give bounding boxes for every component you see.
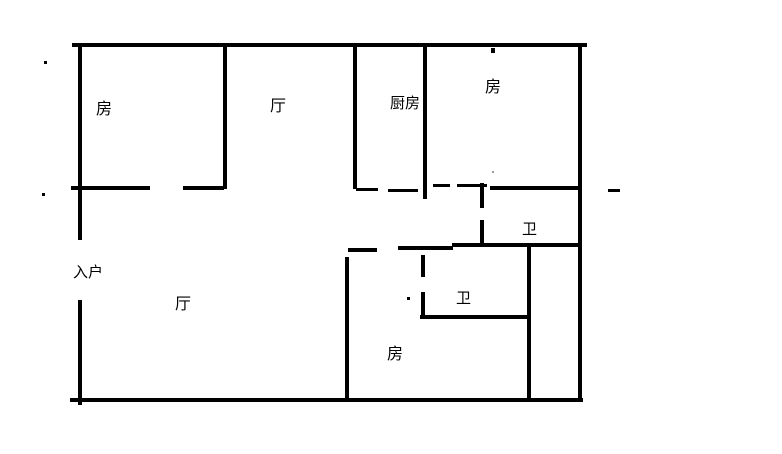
stray-mark-left-upper	[44, 61, 47, 64]
wall-kitchen-bedroom2	[423, 44, 427, 199]
wall-mid-seg2	[183, 186, 224, 190]
room-label-bath-top: 卫	[522, 222, 537, 237]
wall-bedroom1-hall	[223, 46, 227, 189]
wall-mid-seg4	[388, 189, 418, 192]
wall-bath2-left-dash-a	[421, 255, 425, 277]
room-label-hall-main: 厅	[175, 296, 191, 312]
wall-hall-dash	[348, 248, 377, 252]
room-label-bedroom-top-right: 房	[485, 79, 501, 95]
wall-right	[578, 44, 582, 402]
room-label-kitchen: 厨房	[390, 96, 420, 111]
wall-bath1-left-dash-a	[480, 183, 484, 208]
stray-mark-bath2	[407, 297, 410, 300]
wall-left-lower	[78, 300, 82, 405]
wall-bath1-bottom-b	[398, 246, 453, 250]
room-label-hall-top: 厅	[270, 98, 286, 114]
wall-top	[72, 43, 587, 47]
wall-mid-seg1	[71, 186, 150, 190]
wall-hall-kitchen	[353, 47, 357, 189]
wall-bath2-right	[527, 246, 531, 400]
stray-mark-bedroom2-lower	[492, 171, 494, 173]
floorplan-canvas: 房 厅 厨房 房 入户 厅 卫 卫 房	[0, 0, 782, 454]
wall-bath1-bottom-a	[452, 243, 578, 247]
wall-bedroom3-left	[345, 257, 349, 400]
room-label-bath-bottom: 卫	[456, 291, 471, 306]
stray-mark-left-mid	[42, 193, 45, 196]
wall-bath2-bottom	[420, 315, 528, 319]
wall-left-upper	[78, 44, 82, 240]
stray-mark-bedroom2	[491, 48, 495, 53]
wall-mid-seg7	[490, 186, 581, 190]
room-label-bedroom-top-left: 房	[96, 101, 112, 117]
wall-bath1-left-dash-b	[480, 220, 484, 244]
room-label-bedroom-bottom: 房	[387, 346, 403, 362]
wall-mid-seg5	[433, 184, 450, 187]
wall-mid-seg3	[356, 188, 378, 191]
wall-dash-outside-right	[608, 189, 620, 192]
wall-bottom	[70, 398, 583, 402]
room-label-entrance: 入户	[73, 265, 103, 280]
